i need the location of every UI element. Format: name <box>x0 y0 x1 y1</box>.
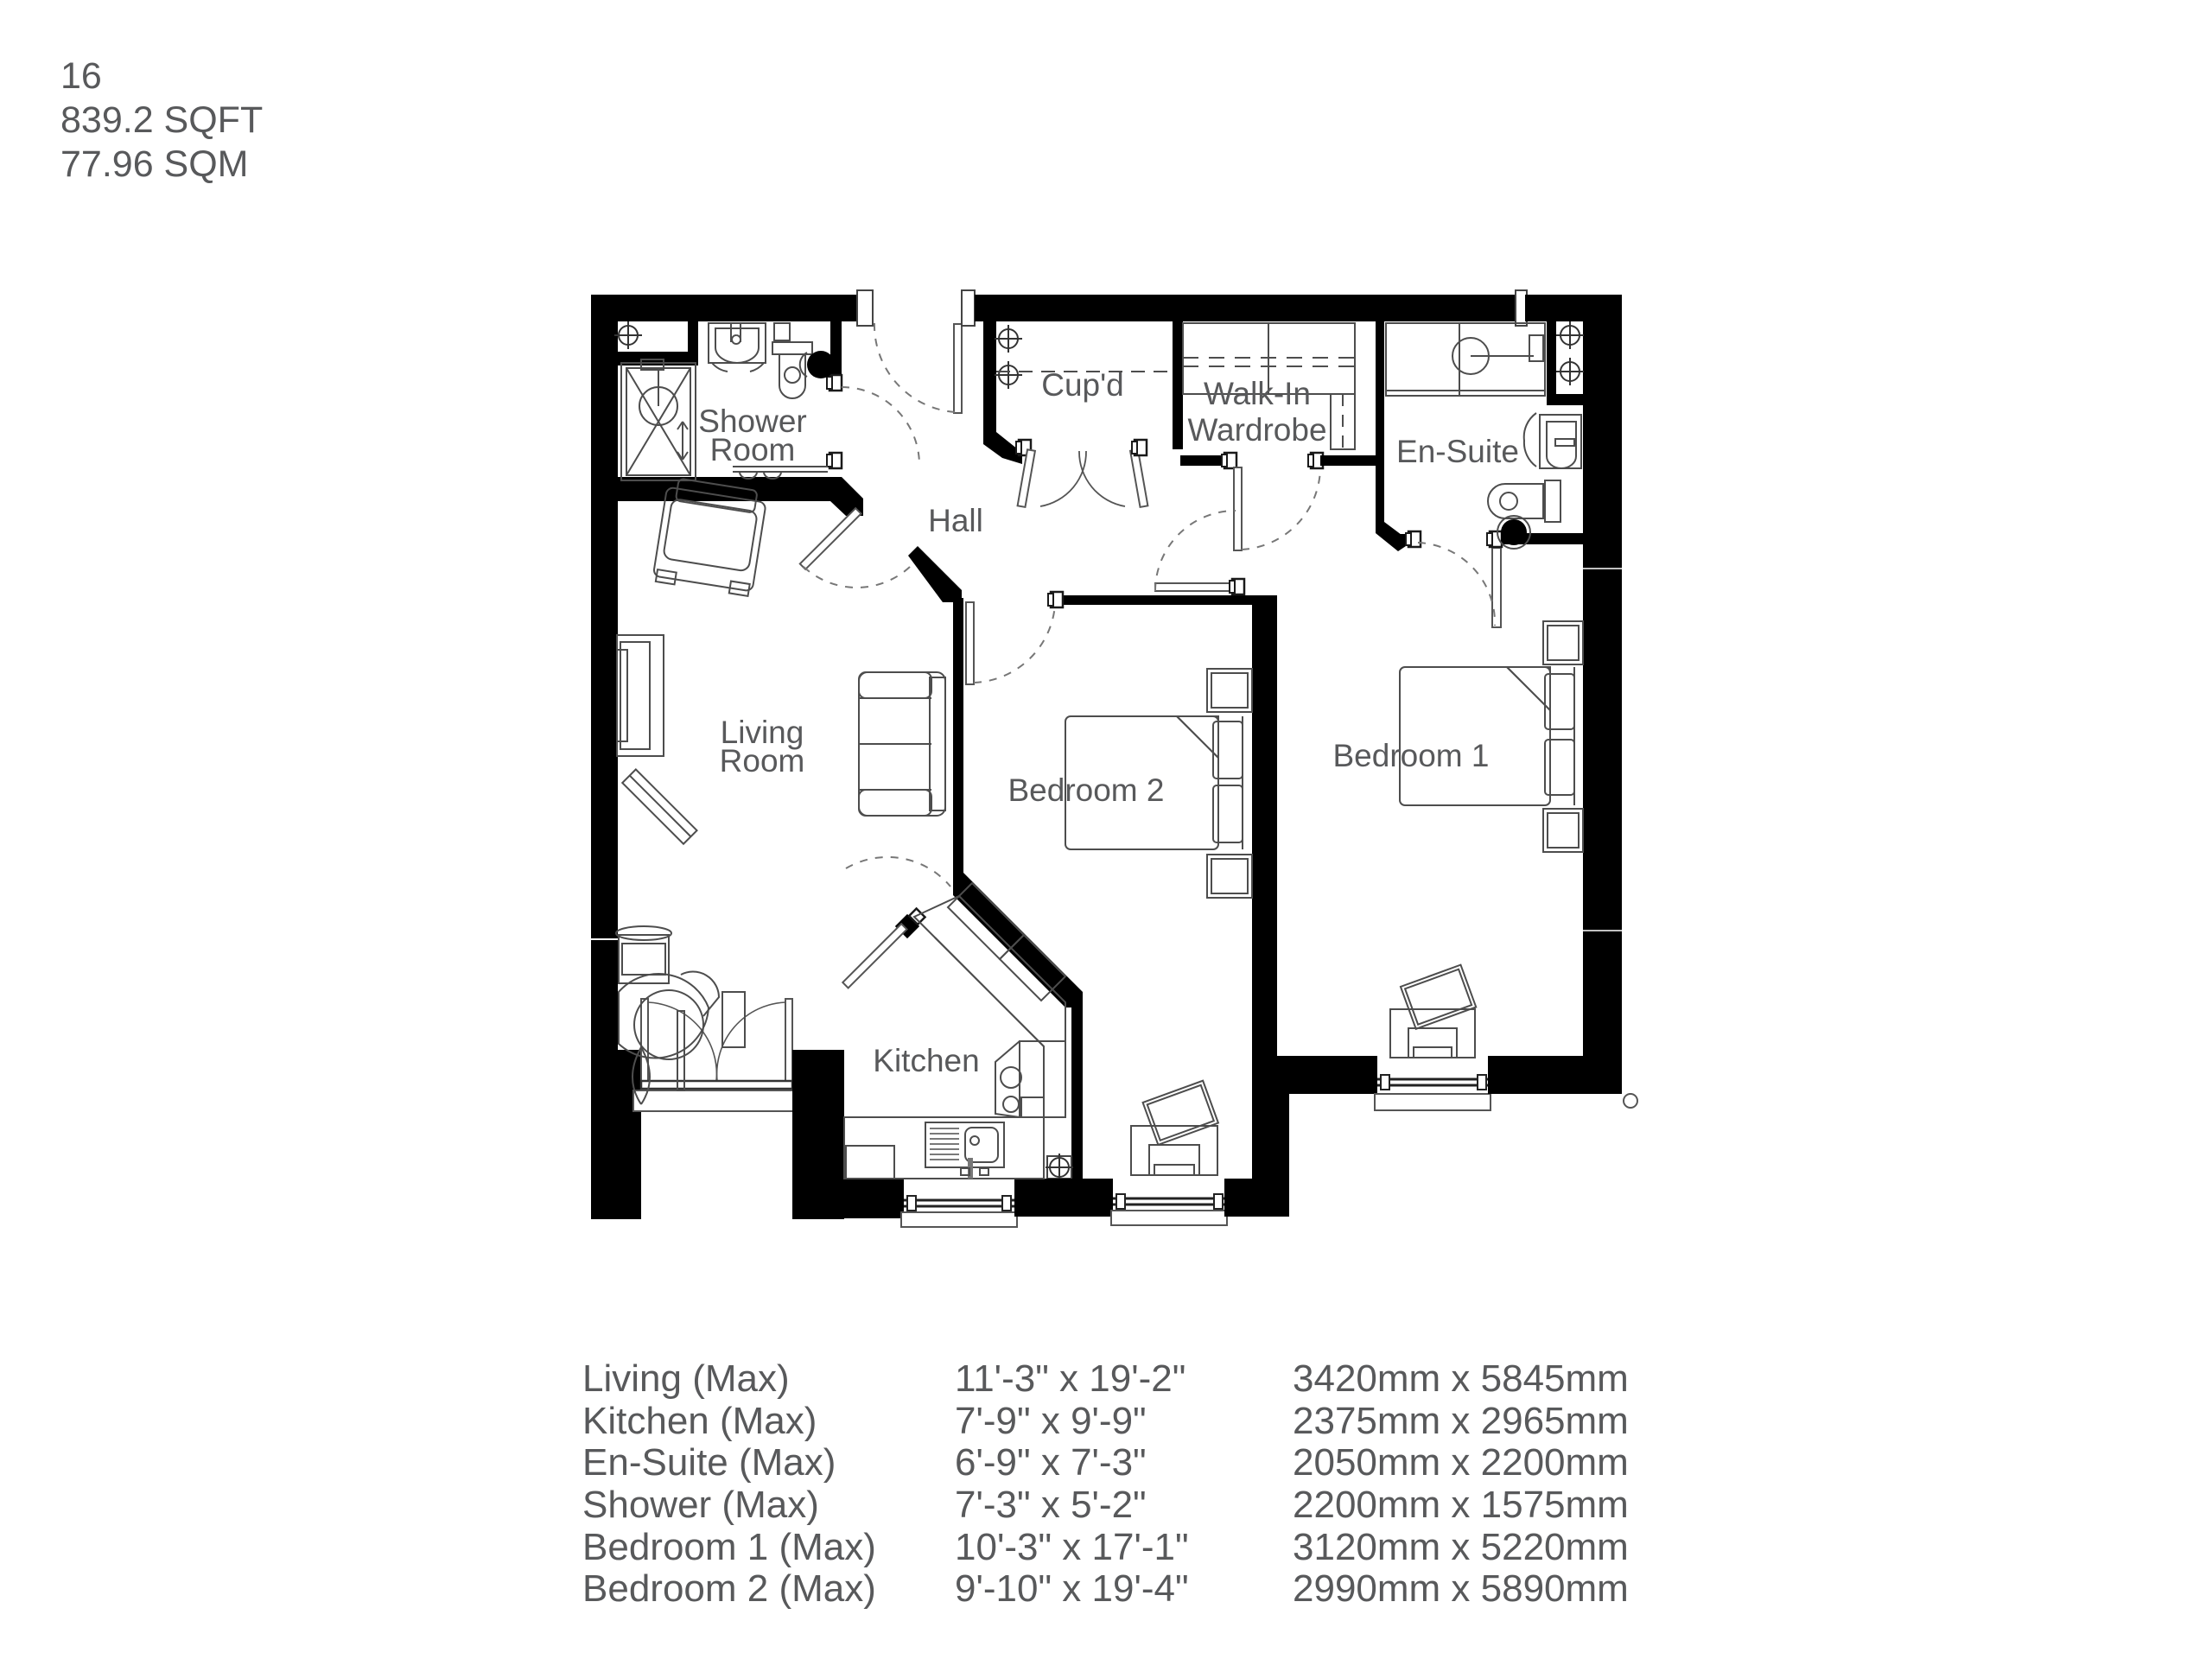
svg-text:2990mm x 5890mm: 2990mm x 5890mm <box>1293 1567 1629 1610</box>
svg-text:6'-9" x 7'-3": 6'-9" x 7'-3" <box>955 1441 1147 1484</box>
svg-text:2050mm x 2200mm: 2050mm x 2200mm <box>1293 1441 1629 1484</box>
svg-text:3120mm x 5220mm: 3120mm x 5220mm <box>1293 1526 1629 1568</box>
svg-text:11'-3" x 19'-2": 11'-3" x 19'-2" <box>955 1357 1185 1400</box>
svg-text:Cup'd: Cup'd <box>1041 367 1124 403</box>
svg-text:Walk-In: Walk-In <box>1204 376 1311 411</box>
svg-text:77.96 SQM: 77.96 SQM <box>60 143 249 185</box>
svg-text:Room: Room <box>710 432 796 467</box>
svg-text:839.2 SQFT: 839.2 SQFT <box>60 99 263 141</box>
svg-text:7'-9" x 9'-9": 7'-9" x 9'-9" <box>955 1400 1147 1442</box>
svg-text:En-Suite: En-Suite <box>1396 434 1519 469</box>
svg-text:Living (Max): Living (Max) <box>582 1357 790 1400</box>
svg-text:Wardrobe: Wardrobe <box>1187 412 1326 448</box>
svg-text:2200mm x 1575mm: 2200mm x 1575mm <box>1293 1484 1629 1526</box>
svg-text:En-Suite (Max): En-Suite (Max) <box>582 1441 836 1484</box>
svg-text:Bedroom 1: Bedroom 1 <box>1333 738 1490 773</box>
svg-text:3420mm x 5845mm: 3420mm x 5845mm <box>1293 1357 1629 1400</box>
svg-text:7'-3" x 5'-2": 7'-3" x 5'-2" <box>955 1484 1147 1526</box>
svg-text:16: 16 <box>60 55 102 97</box>
svg-text:Kitchen (Max): Kitchen (Max) <box>582 1400 817 1442</box>
svg-text:10'-3" x 17'-1": 10'-3" x 17'-1" <box>955 1526 1189 1568</box>
svg-text:Hall: Hall <box>928 503 983 538</box>
svg-text:2375mm x 2965mm: 2375mm x 2965mm <box>1293 1400 1629 1442</box>
svg-text:Shower (Max): Shower (Max) <box>582 1484 819 1526</box>
svg-text:Kitchen: Kitchen <box>873 1043 979 1078</box>
svg-text:Bedroom 1 (Max): Bedroom 1 (Max) <box>582 1526 876 1568</box>
svg-text:Bedroom 2: Bedroom 2 <box>1008 772 1165 808</box>
svg-text:Bedroom 2 (Max): Bedroom 2 (Max) <box>582 1567 876 1610</box>
svg-text:Room: Room <box>720 743 805 779</box>
svg-text:9'-10" x 19'-4": 9'-10" x 19'-4" <box>955 1567 1189 1610</box>
